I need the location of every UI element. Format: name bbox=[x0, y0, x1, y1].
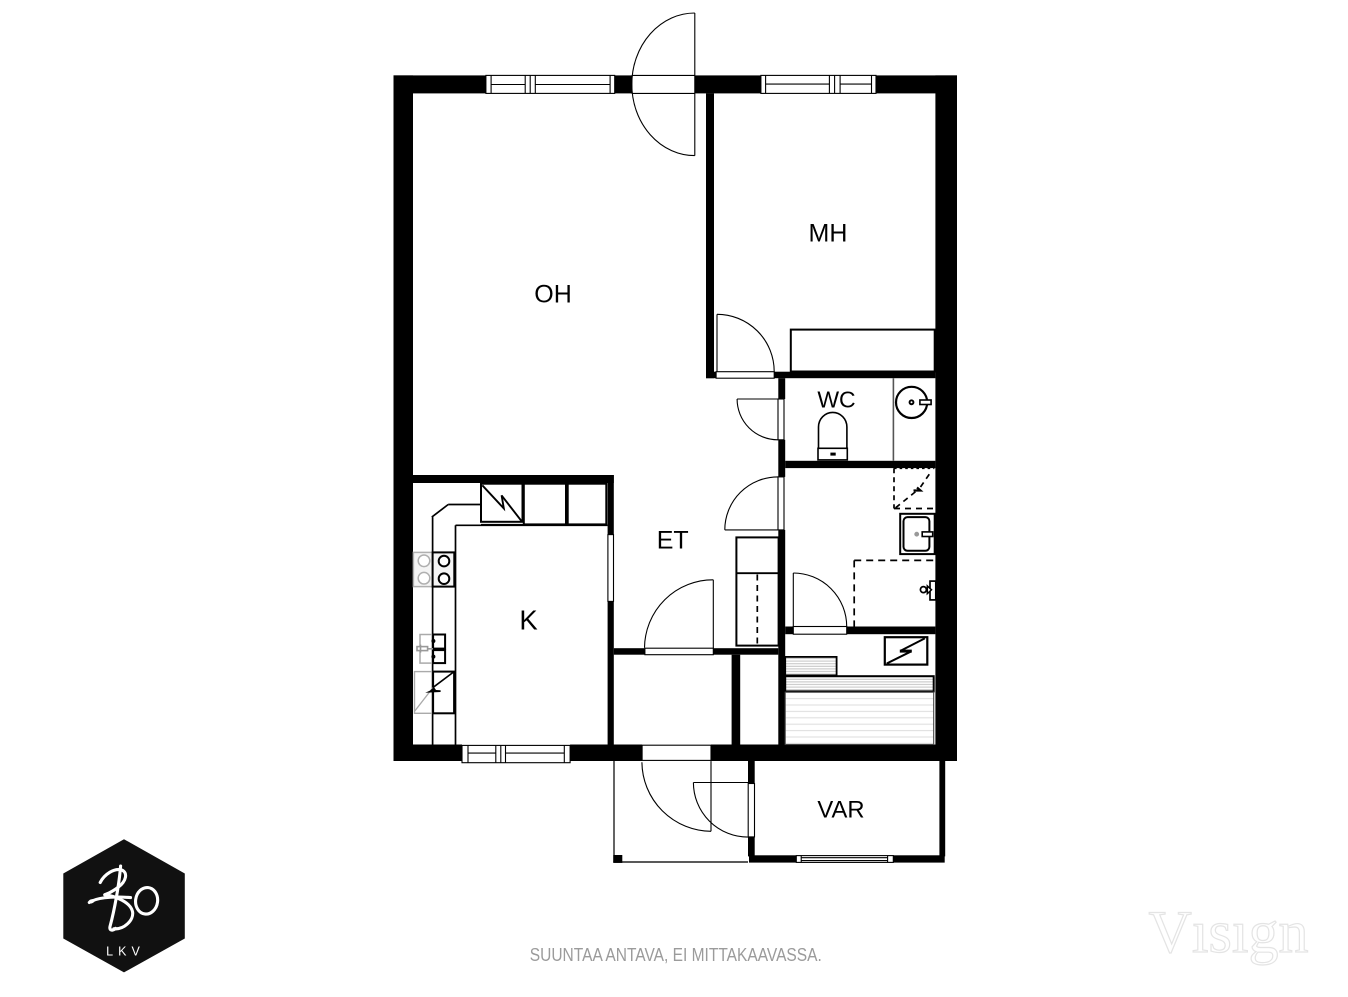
svg-text:LKV: LKV bbox=[106, 945, 145, 959]
svg-text:K: K bbox=[519, 605, 538, 636]
svg-text:OH: OH bbox=[534, 281, 572, 309]
svg-text:ET: ET bbox=[657, 527, 689, 555]
svg-text:VAR: VAR bbox=[817, 797, 864, 824]
svg-text:Vısıgn: Vısıgn bbox=[1148, 899, 1308, 965]
svg-text:SUUNTAA ANTAVA, EI MITTAKAAVAS: SUUNTAA ANTAVA, EI MITTAKAAVASSA. bbox=[530, 945, 822, 965]
svg-text:MH: MH bbox=[809, 220, 848, 248]
svg-text:WC: WC bbox=[817, 387, 855, 413]
